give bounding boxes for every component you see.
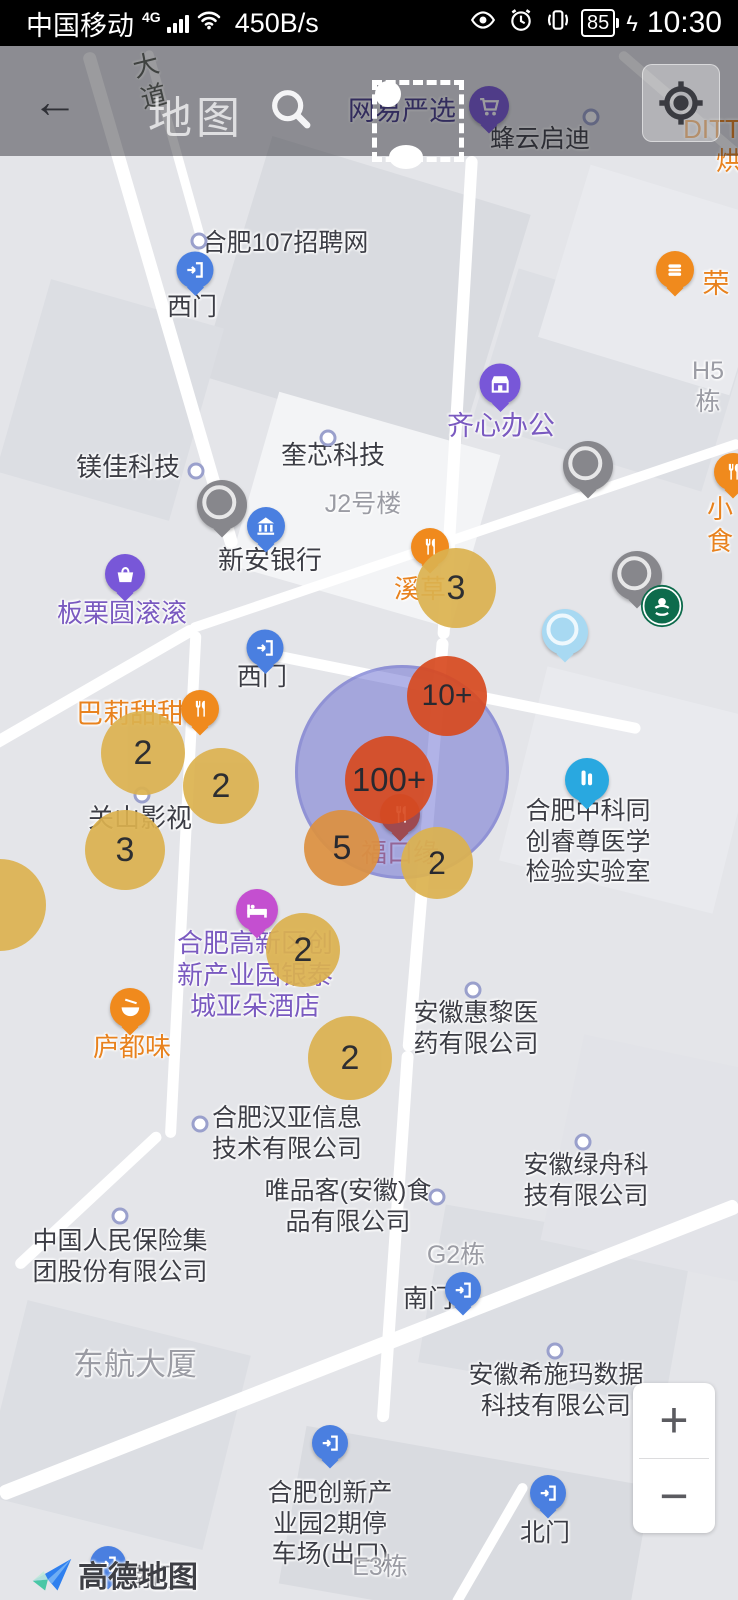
poi-label-ximen-top[interactable]: 西门: [167, 292, 217, 323]
header-overlay: [0, 46, 738, 156]
network-speed: 450B/s: [235, 8, 319, 39]
signal-bars-icon: [167, 13, 189, 33]
charging-bolt-icon: ϟ: [626, 11, 638, 37]
zoom-in-button[interactable]: +: [633, 1383, 715, 1458]
zoom-control: + −: [633, 1383, 715, 1533]
marker-lightblue-pin[interactable]: [542, 609, 588, 655]
gate-icon: [177, 252, 214, 289]
poi-dot-marker[interactable]: [320, 430, 337, 447]
status-bar: 中国移动 4G 450B/s: [0, 0, 738, 46]
marker-flask-zhongke[interactable]: [565, 758, 609, 802]
poi-label-lvzhou[interactable]: 安徽绿舟科 技有限公司: [523, 1150, 648, 1211]
flask-icon: [565, 758, 609, 802]
cluster-3-guanshan[interactable]: 3: [85, 810, 165, 890]
building-label-j2: J2号楼: [325, 489, 401, 520]
zoom-out-button[interactable]: −: [633, 1459, 715, 1534]
amap-logo: 高德地图: [30, 1552, 198, 1596]
marker-gray-pin-1[interactable]: [197, 480, 247, 530]
cluster-2-fukou[interactable]: 2: [401, 827, 473, 899]
marker-gate-beimen[interactable]: [530, 1475, 566, 1511]
marker-gate-tingchechang[interactable]: [312, 1425, 348, 1461]
cluster-2-hanya[interactable]: 2: [308, 1016, 392, 1100]
poi-dot-marker[interactable]: [192, 1116, 209, 1133]
highlight-blob: [375, 81, 401, 107]
poi-dot-marker[interactable]: [429, 1189, 446, 1206]
burger-icon: [656, 251, 694, 289]
poi-label-beimen[interactable]: 北门: [520, 1518, 570, 1549]
network-type-label: 4G: [142, 10, 161, 24]
marker-gate-ximen-mid[interactable]: [247, 630, 284, 667]
poi-label-qixinbangong[interactable]: 齐心办公: [447, 410, 555, 443]
marker-shop-qixinbangong[interactable]: [480, 364, 521, 405]
poi-label-renbao[interactable]: 中国人民保险集 团股份有限公司: [32, 1226, 207, 1287]
locate-button[interactable]: [642, 64, 720, 142]
cluster-partial-left[interactable]: [0, 859, 46, 951]
cluster-2-yaduo[interactable]: 2: [266, 913, 340, 987]
poi-label-huili[interactable]: 安徽惠黎医 药有限公司: [413, 998, 538, 1059]
gate-icon: [530, 1475, 566, 1511]
fork-knife-icon: [714, 453, 738, 491]
marker-gray-pin-2[interactable]: [563, 441, 613, 491]
building-label-h5: H5栋: [692, 356, 724, 417]
bank-icon: [247, 507, 285, 545]
page-title: 地图: [148, 82, 244, 146]
marker-gate-ximen-top[interactable]: [177, 252, 214, 289]
vibrate-icon: [544, 7, 572, 40]
cluster-2-bali-left[interactable]: 2: [101, 711, 185, 795]
map-building: [0, 1300, 251, 1550]
cluster-5[interactable]: 5: [304, 810, 380, 886]
lens-ring: [546, 613, 578, 645]
poi-label-xiaoshi[interactable]: 小食: [707, 494, 733, 557]
poi-dot-marker[interactable]: [112, 1208, 129, 1225]
marker-starbucks[interactable]: [639, 583, 685, 629]
battery-icon: 85: [581, 9, 615, 37]
gate-icon: [445, 1272, 481, 1308]
marker-fork-bali[interactable]: [181, 690, 219, 728]
carrier-label: 中国移动: [26, 4, 134, 43]
selected-poi-highlight: [372, 80, 464, 162]
marker-gate-nanmen-mid[interactable]: [445, 1272, 481, 1308]
amap-paperplane-icon: [30, 1552, 74, 1596]
poi-label-xishima[interactable]: 安徽希施玛数据 科技有限公司: [468, 1360, 643, 1421]
poi-dot-marker[interactable]: [465, 982, 482, 999]
shop-icon: [480, 364, 521, 405]
marker-orange-edge[interactable]: [714, 453, 738, 491]
marker-bed-yaduo[interactable]: [236, 889, 278, 931]
poi-label-meijiakeji[interactable]: 镁佳科技: [76, 452, 180, 484]
eye-comfort-icon: [468, 7, 498, 40]
poi-dot-marker[interactable]: [191, 233, 208, 250]
back-button[interactable]: ←: [32, 78, 78, 124]
wifi-icon: [195, 8, 223, 39]
marker-bowl-luduwei[interactable]: [110, 988, 150, 1028]
gate-icon: [247, 630, 284, 667]
poi-label-luduwei[interactable]: 庐都味: [93, 1032, 171, 1064]
poi-dot-marker[interactable]: [547, 1343, 564, 1360]
crosshair-icon: [655, 77, 707, 129]
building-label-e3: E3栋: [352, 1552, 408, 1583]
lens-ring: [202, 485, 236, 519]
alarm-icon: [507, 7, 535, 40]
gate-icon: [312, 1425, 348, 1461]
phone-screen: 大 道网易严选蜂云启迪DITT烘合肥107招聘网西门荣H5栋齐心办公奎芯科技镁佳…: [0, 0, 738, 1600]
cluster-3-xicao[interactable]: 3: [416, 548, 496, 628]
poi-label-hanya[interactable]: 合肥汉亚信息 技术有限公司: [212, 1103, 362, 1164]
clock-label: 10:30: [647, 6, 722, 40]
cluster-10plus[interactable]: 10+: [407, 656, 487, 736]
poi-dot-marker[interactable]: [188, 463, 205, 480]
basket-icon: [105, 554, 145, 594]
marker-burger-rong[interactable]: [656, 251, 694, 289]
poi-label-hefei107[interactable]: 合肥107招聘网: [202, 228, 369, 259]
poi-label-banliyuangungun[interactable]: 板栗圆滚滚: [57, 598, 187, 630]
highlight-blob: [389, 145, 423, 169]
poi-label-zhongketongchuang[interactable]: 合肥中科同 创睿尊医学 检验实验室: [525, 796, 650, 888]
bowl-icon: [110, 988, 150, 1028]
building-label-donghang: 东航大厦: [73, 1346, 197, 1384]
marker-bank-xinanyinhang[interactable]: [247, 507, 285, 545]
fork-knife-icon: [181, 690, 219, 728]
building-label-g2: G2栋: [427, 1240, 485, 1271]
cluster-100plus[interactable]: 100+: [345, 736, 433, 824]
cluster-2-bali-right[interactable]: 2: [183, 748, 259, 824]
marker-basket-banli[interactable]: [105, 554, 145, 594]
amap-logo-text: 高德地图: [78, 1552, 198, 1596]
bed-icon: [236, 889, 278, 931]
search-icon[interactable]: [266, 84, 318, 141]
poi-dot-marker[interactable]: [575, 1134, 592, 1151]
poi-label-rong[interactable]: 荣: [703, 268, 730, 301]
map-canvas[interactable]: 大 道网易严选蜂云启迪DITT烘合肥107招聘网西门荣H5栋齐心办公奎芯科技镁佳…: [0, 0, 738, 1600]
poi-label-weipinke[interactable]: 唯品客(安徽)食 品有限公司: [265, 1176, 432, 1237]
lens-ring: [568, 446, 602, 480]
poi-label-xinanyinhang[interactable]: 新安银行: [218, 545, 322, 577]
